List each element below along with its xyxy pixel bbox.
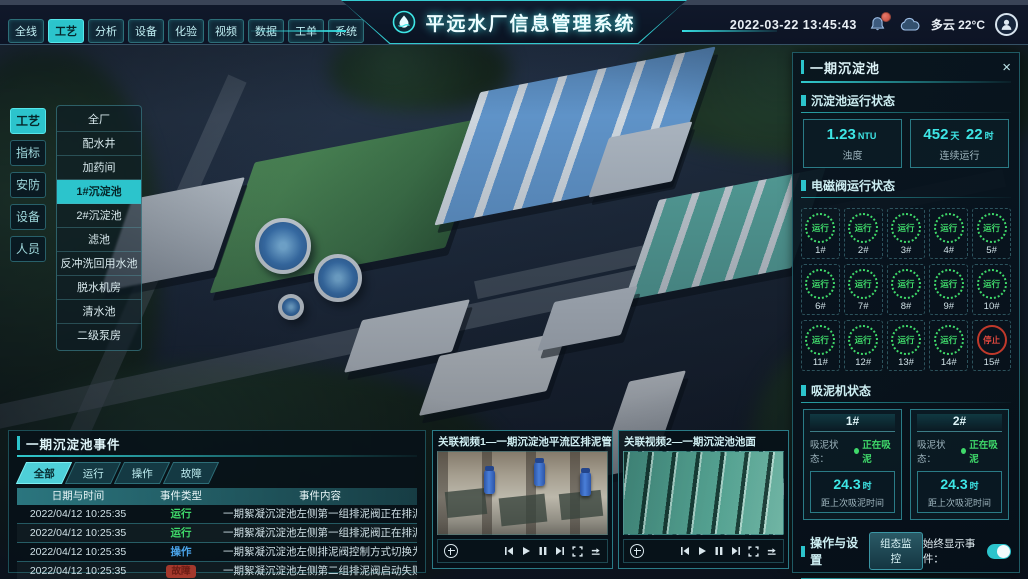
left-tab-metrics[interactable]: 指标 [10, 140, 46, 166]
video-2-title: 关联视频2—一期沉淀池池面 [619, 431, 788, 451]
video-scene-detail [445, 488, 487, 518]
play-icon[interactable] [697, 546, 707, 556]
divider [801, 402, 1011, 403]
submenu-item-clear-pool[interactable]: 清水池 [57, 300, 141, 324]
event-type-badge: 运行 [171, 508, 192, 520]
submenu-item-water-well[interactable]: 配水井 [57, 132, 141, 156]
valve-7[interactable]: 运行7# [844, 264, 883, 315]
mud-timer-box: 24.3时 距上次吸泥时间 [917, 471, 1002, 513]
valve-2[interactable]: 运行2# [844, 208, 883, 259]
submenu-item-filter-pool[interactable]: 滤池 [57, 228, 141, 252]
skip-back-icon[interactable] [680, 546, 690, 556]
top-bar: 全线 工艺 分析 设备 化验 视频 数据 工单 系统 平远水厂信息管理系统 20… [0, 0, 1028, 45]
video-2-screen[interactable] [623, 451, 784, 535]
events-table-header: 日期与时间 事件类型 事件内容 [17, 488, 417, 505]
sedimentation-detail-panel: 一期沉淀池 × 沉淀池运行状态 1.23NTU 浊度 452天 22时 连续运行… [792, 52, 1020, 573]
status-dot-green [854, 448, 859, 454]
event-row[interactable]: 2022/04/12 10:25:35 操作 一期絮凝沉淀池左侧排泥阀控制方式切… [17, 543, 417, 562]
events-header: 一期沉淀池事件 [9, 431, 425, 455]
left-tab-security[interactable]: 安防 [10, 172, 46, 198]
nav-tab-quanxian[interactable]: 全线 [8, 19, 44, 43]
ptz-pad-icon[interactable] [444, 544, 458, 558]
left-tab-personnel[interactable]: 人员 [10, 236, 46, 262]
event-row[interactable]: 2022/04/12 10:25:35 运行 一期絮凝沉淀池左侧第一组排泥阀正在… [17, 524, 417, 543]
divider [801, 81, 1011, 83]
event-tab-run[interactable]: 运行 [65, 462, 121, 484]
event-tab-all[interactable]: 全部 [16, 462, 72, 484]
divider [801, 112, 1011, 113]
scada-monitor-button[interactable]: 组态监控 [869, 532, 923, 570]
left-category-tabs: 工艺 指标 安防 设备 人员 [10, 108, 46, 262]
valve-run-ring: 运行 [848, 213, 878, 243]
event-tab-fault[interactable]: 故障 [163, 462, 219, 484]
weather-display: 多云 22°C [931, 16, 985, 33]
valve-9[interactable]: 运行9# [929, 264, 968, 315]
operations-settings-row: 操作与设置 组态监控 始终显示事件： [801, 532, 1011, 570]
valve-status-grid: 运行1# 运行2# 运行3# 运行4# 运行5# 运行6# 运行7# 运行8# … [793, 204, 1019, 373]
process-submenu: 全厂 配水井 加药间 1#沉淀池 2#沉淀池 滤池 反冲洗回用水池 脱水机房 清… [56, 105, 142, 351]
nav-tab-fenxi[interactable]: 分析 [88, 19, 124, 43]
valve-3[interactable]: 运行3# [887, 208, 926, 259]
event-type-badge: 故障 [166, 565, 195, 578]
section-marker [801, 180, 806, 191]
linked-video-panel-2: 关联视频2—一期沉淀池池面 [618, 430, 789, 569]
section-marker [801, 546, 805, 557]
submenu-item-backwash-pool[interactable]: 反冲洗回用水池 [57, 252, 141, 276]
continuous-run-stat: 452天 22时 连续运行 [910, 119, 1009, 168]
valve-run-ring: 运行 [891, 325, 921, 355]
section-marker [801, 385, 806, 396]
event-filter-tabs: 全部 运行 操作 故障 [21, 462, 425, 484]
title-wing-line [682, 30, 777, 32]
event-row[interactable]: 2022/04/12 10:25:35 故障 一期絮凝沉淀池左侧第二组排泥阀启动… [17, 562, 417, 579]
pump [534, 462, 545, 486]
always-show-events-toggle[interactable] [987, 544, 1011, 559]
notification-badge [881, 12, 891, 22]
pause-icon[interactable] [714, 546, 724, 556]
header-accent-bar [801, 60, 804, 74]
event-type-badge: 操作 [171, 546, 192, 558]
valve-run-ring: 运行 [977, 269, 1007, 299]
section-marker [801, 95, 806, 106]
divider [17, 455, 417, 457]
fullscreen-icon[interactable] [748, 546, 759, 557]
play-icon[interactable] [521, 546, 531, 556]
valve-1[interactable]: 运行1# [801, 208, 840, 259]
valve-run-ring: 运行 [848, 325, 878, 355]
events-title: 一期沉淀池事件 [26, 434, 121, 453]
mud-machine-1: 1# 吸泥状态： 正在吸泥 24.3时 距上次吸泥时间 [803, 409, 902, 520]
nav-tab-shebei[interactable]: 设备 [128, 19, 164, 43]
linked-video-panel-1: 关联视频1—一期沉淀池平流区排泥管廊 [432, 430, 613, 569]
event-tab-operate[interactable]: 操作 [114, 462, 170, 484]
top-right-cluster: 2022-03-22 13:45:43 多云 22°C [730, 13, 1018, 36]
submenu-item-whole-plant[interactable]: 全厂 [57, 108, 141, 132]
video-1-screen[interactable] [437, 451, 608, 535]
toggle-knob [997, 545, 1010, 558]
page-title: 平远水厂信息管理系统 [425, 9, 635, 36]
pump [580, 472, 591, 496]
valve-run-ring: 运行 [805, 269, 835, 299]
event-row[interactable]: 2022/04/12 10:25:35 运行 一期絮凝沉淀池左侧第一组排泥阀正在… [17, 505, 417, 524]
skip-back-icon[interactable] [504, 546, 514, 556]
ptz-pad-icon[interactable] [630, 544, 644, 558]
submenu-item-secondary-pump[interactable]: 二级泵房 [57, 324, 141, 348]
valve-10[interactable]: 运行10# [972, 264, 1011, 315]
running-status-stats: 1.23NTU 浊度 452天 22时 连续运行 [793, 119, 1019, 168]
sedimentation-events-panel: 一期沉淀池事件 全部 运行 操作 故障 日期与时间 事件类型 事件内容 2022… [8, 430, 426, 573]
submenu-item-dosing-room[interactable]: 加药间 [57, 156, 141, 180]
valve-run-ring: 运行 [891, 213, 921, 243]
header-accent-bar [17, 436, 20, 450]
valve-11[interactable]: 运行11# [801, 320, 840, 371]
status-dot-green [961, 448, 966, 454]
fullscreen-icon[interactable] [572, 546, 583, 557]
nav-tab-shipin[interactable]: 视频 [208, 19, 244, 43]
nav-tab-gongyi[interactable]: 工艺 [48, 19, 84, 43]
loop-icon[interactable] [590, 546, 601, 557]
valve-run-ring: 运行 [934, 213, 964, 243]
title-plate: 平远水厂信息管理系统 [342, 1, 686, 43]
pump [484, 470, 495, 494]
loop-icon[interactable] [766, 546, 777, 557]
title-wing-line [251, 30, 346, 32]
left-tab-process[interactable]: 工艺 [10, 108, 46, 134]
nav-tab-huayan[interactable]: 化验 [168, 19, 204, 43]
skip-forward-icon[interactable] [731, 546, 741, 556]
submenu-item-sedimentation-2[interactable]: 2#沉淀池 [57, 204, 141, 228]
bell-icon[interactable] [867, 15, 889, 35]
close-icon[interactable]: × [1002, 60, 1011, 75]
valve-13[interactable]: 运行13# [887, 320, 926, 371]
valve-run-ring: 运行 [934, 325, 964, 355]
valve-run-ring: 运行 [805, 213, 835, 243]
mud-timer-box: 24.3时 距上次吸泥时间 [810, 471, 895, 513]
valve-run-ring: 运行 [977, 213, 1007, 243]
valve-run-ring: 运行 [805, 325, 835, 355]
video-1-title: 关联视频1—一期沉淀池平流区排泥管廊 [433, 431, 612, 451]
section-mud-suction: 吸泥机状态 [801, 382, 1011, 399]
cloud-icon [899, 15, 921, 35]
valve-6[interactable]: 运行6# [801, 264, 840, 315]
submenu-item-sedimentation-1[interactable]: 1#沉淀池 [57, 180, 141, 204]
submenu-item-dewatering-room[interactable]: 脱水机房 [57, 276, 141, 300]
video-2-controls [623, 539, 784, 563]
valve-run-ring: 运行 [934, 269, 964, 299]
left-tab-equipment[interactable]: 设备 [10, 204, 46, 230]
section-valve-status: 电磁阀运行状态 [801, 177, 1011, 194]
valve-stop-ring: 停止 [977, 325, 1007, 355]
pause-icon[interactable] [538, 546, 548, 556]
mud-machine-2: 2# 吸泥状态： 正在吸泥 24.3时 距上次吸泥时间 [910, 409, 1009, 520]
user-avatar-icon[interactable] [995, 13, 1018, 36]
section-operations: 操作与设置 [810, 534, 859, 568]
panel-header: 一期沉淀池 × [793, 53, 1019, 81]
always-show-events-label: 始终显示事件： [923, 536, 983, 566]
skip-forward-icon[interactable] [555, 546, 565, 556]
valve-run-ring: 运行 [848, 269, 878, 299]
events-table: 日期与时间 事件类型 事件内容 2022/04/12 10:25:35 运行 一… [17, 488, 417, 579]
valve-15[interactable]: 停止15# [972, 320, 1011, 371]
section-running-status: 沉淀池运行状态 [801, 92, 1011, 109]
valve-5[interactable]: 运行5# [972, 208, 1011, 259]
valve-run-ring: 运行 [891, 269, 921, 299]
water-drop-logo-icon [392, 10, 416, 34]
app-title-plate: 平远水厂信息管理系统 [341, 0, 687, 44]
valve-8[interactable]: 运行8# [887, 264, 926, 315]
video-1-controls [437, 539, 608, 563]
mud-machine-cards: 1# 吸泥状态： 正在吸泥 24.3时 距上次吸泥时间 2# 吸泥状态： 正在吸… [793, 409, 1019, 520]
turbidity-stat: 1.23NTU 浊度 [803, 119, 902, 168]
event-type-badge: 运行 [171, 527, 192, 539]
divider [801, 197, 1011, 198]
panel-title: 一期沉淀池 [810, 58, 880, 77]
video-scene-detail [499, 494, 548, 527]
valve-14[interactable]: 运行14# [929, 320, 968, 371]
valve-4[interactable]: 运行4# [929, 208, 968, 259]
valve-12[interactable]: 运行12# [844, 320, 883, 371]
